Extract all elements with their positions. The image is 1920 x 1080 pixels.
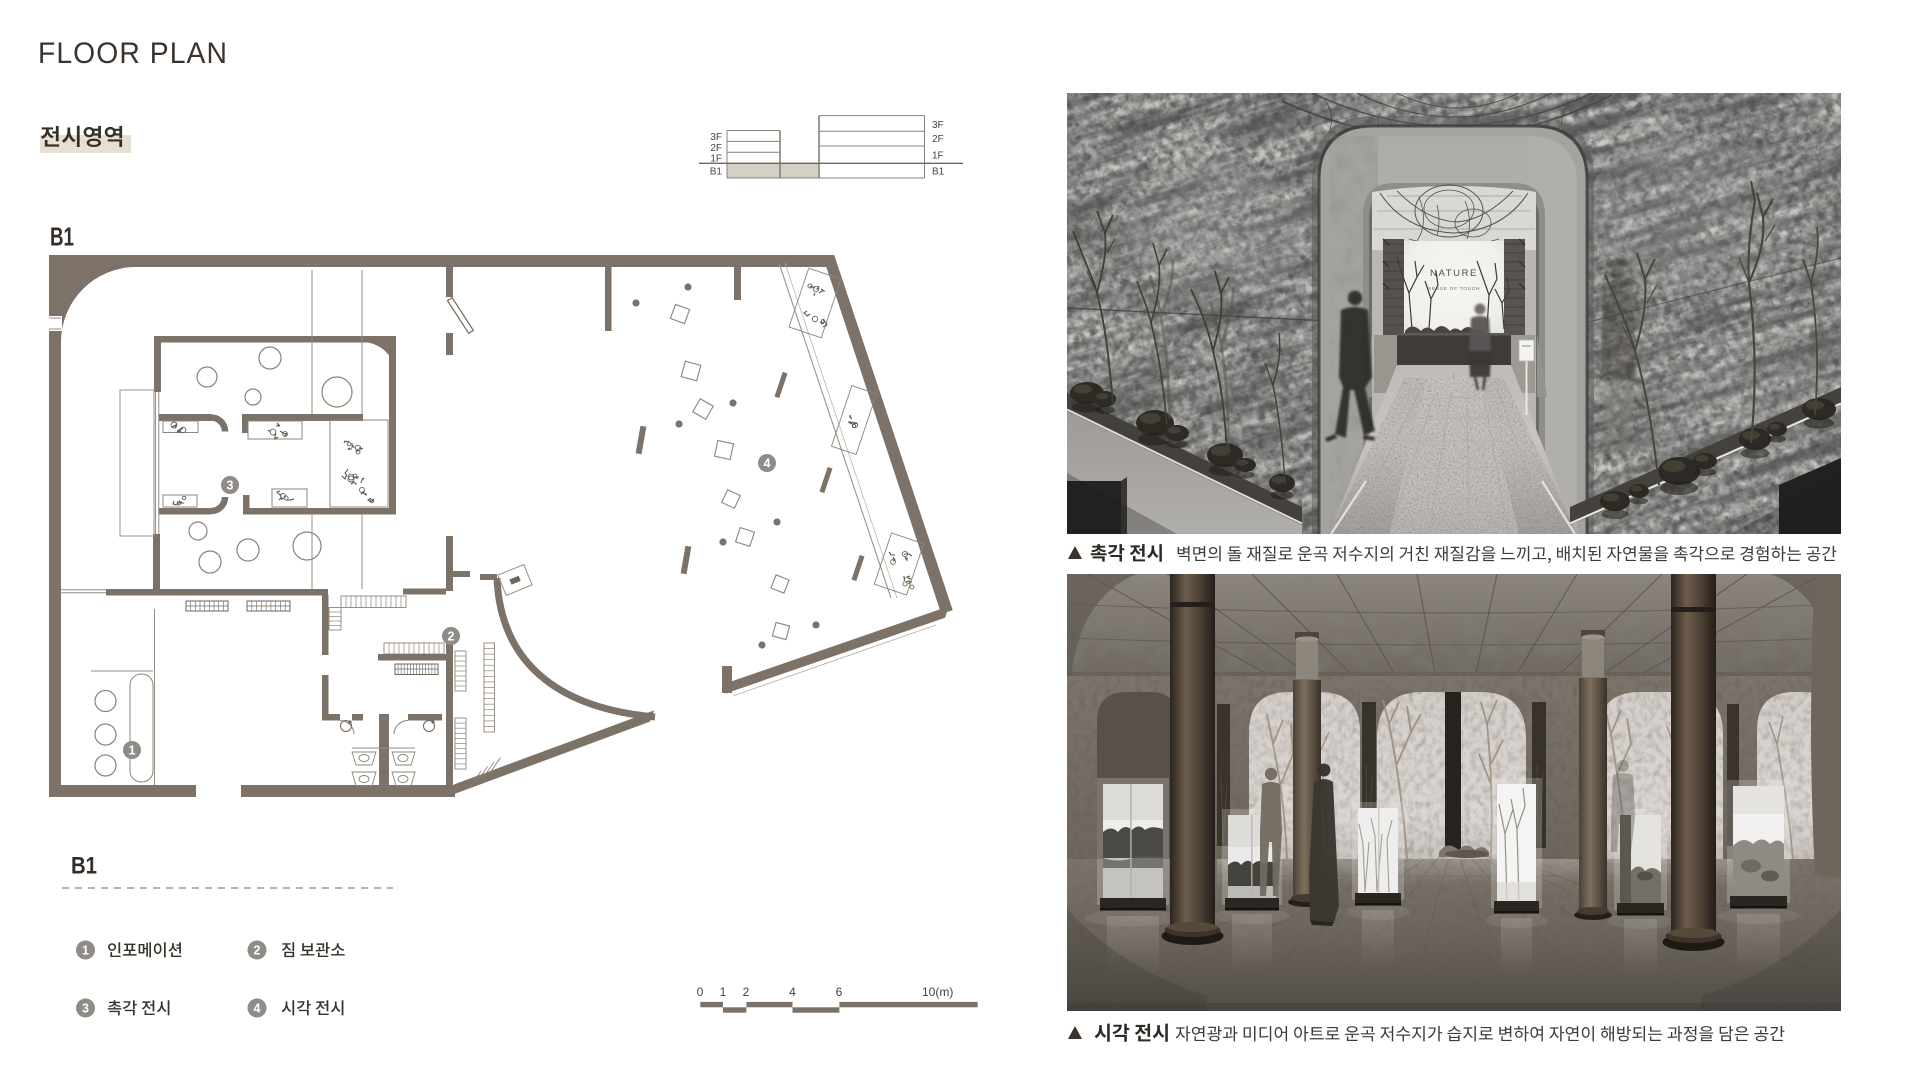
svg-text:0: 0 (697, 985, 704, 999)
svg-text:4: 4 (789, 985, 796, 999)
svg-text:B1: B1 (932, 167, 945, 178)
svg-text:2: 2 (254, 943, 261, 957)
svg-text:4: 4 (764, 456, 771, 470)
svg-text:1: 1 (720, 985, 727, 999)
svg-text:FLOOR PLAN: FLOOR PLAN (38, 37, 228, 70)
svg-text:2: 2 (743, 985, 750, 999)
svg-text:10(m): 10(m) (922, 985, 953, 999)
svg-text:B1: B1 (71, 853, 97, 880)
svg-text:2F: 2F (710, 143, 722, 154)
svg-text:1: 1 (129, 743, 136, 757)
svg-text:3F: 3F (932, 120, 944, 131)
svg-text:1F: 1F (710, 154, 722, 165)
svg-text:1: 1 (82, 943, 89, 957)
svg-text:1F: 1F (932, 151, 944, 162)
svg-text:3: 3 (227, 478, 234, 492)
svg-text:B1: B1 (50, 222, 74, 252)
svg-text:3F: 3F (710, 132, 722, 143)
svg-text:3: 3 (82, 1001, 89, 1015)
svg-text:2: 2 (448, 629, 455, 643)
svg-text:4: 4 (254, 1001, 261, 1015)
svg-text:2F: 2F (932, 134, 944, 145)
svg-text:B1: B1 (710, 167, 723, 178)
svg-text:6: 6 (836, 985, 843, 999)
